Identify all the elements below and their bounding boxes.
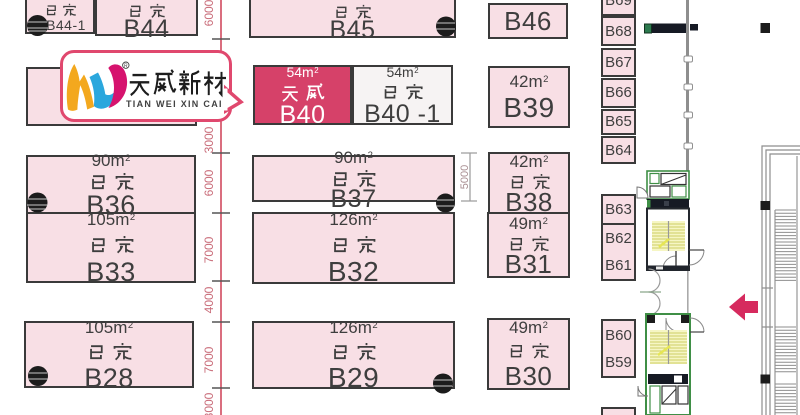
svg-text:7000: 7000 — [202, 346, 216, 373]
svg-text:3000: 3000 — [202, 392, 216, 415]
svg-text:4000: 4000 — [202, 286, 216, 313]
svg-text:5000: 5000 — [459, 165, 471, 189]
svg-text:7000: 7000 — [202, 236, 216, 263]
svg-text:6000: 6000 — [202, 169, 216, 196]
svg-text:3000: 3000 — [202, 126, 216, 153]
svg-text:6000: 6000 — [202, 0, 216, 26]
